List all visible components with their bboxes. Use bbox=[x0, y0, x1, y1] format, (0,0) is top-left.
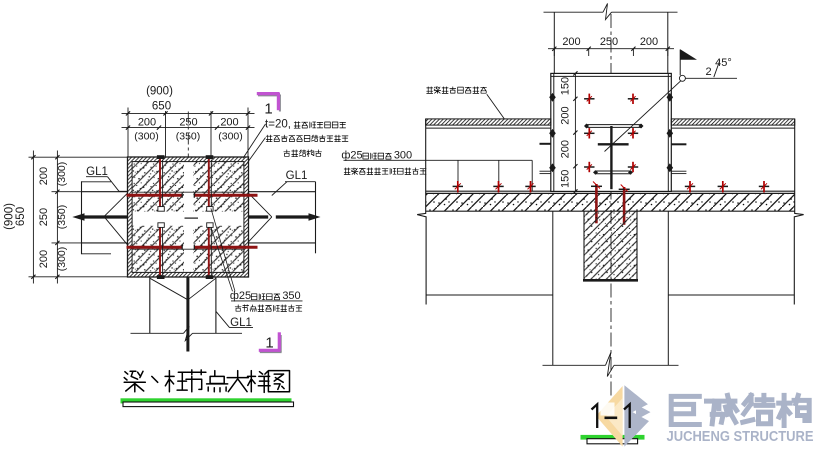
svg-text:200: 200 bbox=[560, 140, 572, 158]
svg-text:200: 200 bbox=[38, 167, 50, 185]
svg-text:(300): (300) bbox=[134, 130, 159, 142]
svg-text:300: 300 bbox=[394, 150, 412, 162]
svg-text:(300): (300) bbox=[56, 162, 68, 187]
svg-text:45°: 45° bbox=[715, 57, 732, 69]
svg-text:1: 1 bbox=[264, 101, 272, 118]
svg-text:200: 200 bbox=[38, 250, 50, 268]
svg-text:GL1: GL1 bbox=[230, 317, 252, 329]
svg-text:250: 250 bbox=[600, 36, 618, 48]
svg-text:650: 650 bbox=[15, 207, 27, 226]
svg-text:200: 200 bbox=[562, 36, 580, 48]
svg-text:150: 150 bbox=[560, 77, 572, 95]
svg-text:200: 200 bbox=[640, 36, 658, 48]
svg-text:GL1: GL1 bbox=[86, 166, 108, 178]
svg-text:GL1: GL1 bbox=[286, 170, 308, 182]
svg-text:200: 200 bbox=[560, 106, 572, 124]
svg-text:(300): (300) bbox=[218, 130, 243, 142]
svg-text:(300): (300) bbox=[56, 247, 68, 272]
svg-text:(900): (900) bbox=[4, 203, 16, 230]
svg-text:2: 2 bbox=[705, 66, 711, 78]
svg-text:t=20,: t=20, bbox=[265, 118, 291, 130]
svg-text:650: 650 bbox=[152, 101, 171, 113]
svg-text:JUCHENG STRUCTURE: JUCHENG STRUCTURE bbox=[667, 428, 814, 445]
svg-text:200: 200 bbox=[220, 116, 238, 128]
svg-text:ф25: ф25 bbox=[341, 150, 362, 162]
svg-text:200: 200 bbox=[138, 116, 156, 128]
svg-text:(350): (350) bbox=[56, 205, 68, 230]
svg-text:(900): (900) bbox=[146, 86, 173, 98]
svg-text:1: 1 bbox=[265, 335, 273, 352]
svg-text:ф25: ф25 bbox=[230, 290, 251, 302]
svg-text:150: 150 bbox=[560, 170, 572, 188]
svg-text:350: 350 bbox=[282, 290, 300, 302]
svg-text:250: 250 bbox=[38, 208, 50, 226]
